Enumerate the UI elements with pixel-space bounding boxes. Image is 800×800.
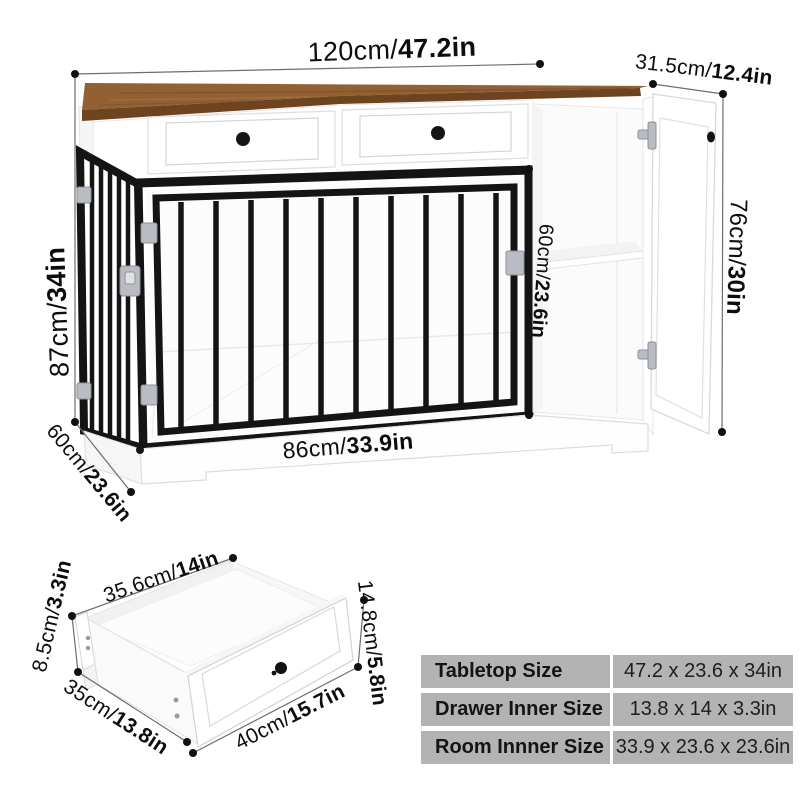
dimension-diagram-page: 120cm/47.2in 31.5cm/12.4in 87cm/34in 60c… — [0, 0, 800, 800]
dim-line-top-depth — [653, 84, 723, 94]
drawer-knob — [236, 132, 250, 146]
spec-row-label: Room Innner Size — [421, 731, 610, 764]
drawer-knob — [431, 126, 445, 140]
dim-label-left-height: 87cm/34in — [42, 246, 74, 377]
door-hinge — [141, 385, 157, 405]
drawer-front-knob — [275, 662, 287, 674]
dim-label-right-height: 76cm/30in — [722, 199, 750, 316]
dim-metric: 86cm/ — [282, 433, 348, 464]
side-latch-plate — [125, 272, 135, 284]
dim-metric: 60cm/ — [531, 223, 557, 280]
screw-hole — [86, 646, 90, 650]
open-cabinet — [533, 94, 716, 434]
dim-imperial: 47.2in — [397, 32, 476, 65]
side-hinge — [77, 187, 91, 203]
dim-imperial: 34in — [40, 246, 72, 302]
crate-interior-fill — [146, 178, 523, 442]
crate-interior — [146, 178, 523, 442]
dim-label-top-width: 120cm/47.2in — [307, 34, 477, 67]
spec-row-label: Drawer Inner Size — [421, 693, 610, 726]
dim-imperial: 30in — [721, 265, 750, 315]
dim-metric: 76cm/ — [723, 199, 752, 267]
door-hinge — [141, 223, 157, 243]
dim-metric: 87cm/ — [42, 302, 75, 378]
screw-hole — [86, 636, 90, 640]
screw-hole — [175, 714, 180, 719]
drawer-front-knob-stem — [272, 671, 277, 676]
screw-hole — [174, 698, 179, 703]
spec-table: Tabletop Size 47.2 x 23.6 x 34in Drawer … — [421, 655, 793, 764]
main-furniture — [77, 83, 716, 484]
spec-row-value: 47.2 x 23.6 x 34in — [613, 655, 793, 688]
cabinet-door-knob — [707, 132, 715, 143]
side-hinge — [77, 383, 91, 399]
dim-imperial: 23.6in — [527, 279, 553, 339]
dim-imperial: 33.9in — [346, 427, 415, 458]
spec-row-value: 33.9 x 23.6 x 23.6in — [613, 731, 793, 764]
dim-metric: 120cm/ — [307, 34, 398, 67]
door-latch — [506, 251, 524, 275]
spec-row-label: Tabletop Size — [421, 655, 610, 688]
cabinet-door — [651, 94, 716, 434]
spec-row-value: 13.8 x 14 x 3.3in — [613, 693, 793, 726]
